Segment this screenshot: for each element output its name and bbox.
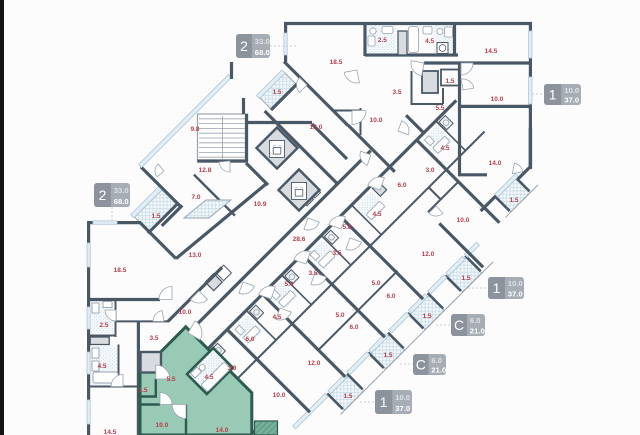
svg-text:37.0: 37.0 xyxy=(508,289,523,298)
svg-text:9.8: 9.8 xyxy=(190,126,199,133)
svg-text:1: 1 xyxy=(493,280,501,296)
svg-text:14.5: 14.5 xyxy=(104,429,117,435)
svg-text:4.5: 4.5 xyxy=(97,363,106,370)
svg-text:10.0: 10.0 xyxy=(508,279,523,288)
svg-text:10.0: 10.0 xyxy=(457,217,470,224)
svg-text:10.0: 10.0 xyxy=(179,309,192,316)
svg-text:28.6: 28.6 xyxy=(293,236,306,243)
svg-text:10.0: 10.0 xyxy=(395,393,410,402)
svg-text:12.8: 12.8 xyxy=(199,167,212,174)
svg-text:10.0: 10.0 xyxy=(273,392,286,399)
svg-text:1: 1 xyxy=(380,394,388,410)
svg-text:12.0: 12.0 xyxy=(308,360,321,367)
svg-text:1.5: 1.5 xyxy=(138,387,147,394)
svg-text:1.5: 1.5 xyxy=(151,213,160,220)
svg-text:3.5: 3.5 xyxy=(149,335,158,342)
svg-text:C: C xyxy=(416,357,426,373)
svg-text:5.0: 5.0 xyxy=(342,224,351,231)
svg-text:1.5: 1.5 xyxy=(343,393,352,400)
svg-text:3.5: 3.5 xyxy=(308,270,317,277)
svg-text:18.5: 18.5 xyxy=(330,59,343,66)
svg-text:33.0: 33.0 xyxy=(255,37,270,46)
svg-text:12.0: 12.0 xyxy=(422,251,435,258)
svg-text:1.5: 1.5 xyxy=(272,89,281,96)
svg-text:6.0: 6.0 xyxy=(349,324,358,331)
svg-text:14.5: 14.5 xyxy=(485,48,498,55)
svg-text:5.5: 5.5 xyxy=(435,105,444,112)
svg-text:3.0: 3.0 xyxy=(425,167,434,174)
svg-text:7.0: 7.0 xyxy=(191,194,200,201)
svg-text:18.5: 18.5 xyxy=(114,267,127,274)
svg-text:33.0: 33.0 xyxy=(114,186,129,195)
svg-text:13.0: 13.0 xyxy=(189,252,202,259)
svg-text:3.5: 3.5 xyxy=(332,250,341,257)
svg-text:5.5: 5.5 xyxy=(166,376,175,383)
svg-text:37.0: 37.0 xyxy=(395,404,410,413)
svg-text:1: 1 xyxy=(549,87,557,103)
svg-text:4.5: 4.5 xyxy=(425,38,434,45)
svg-text:←→: ←→ xyxy=(272,142,281,147)
svg-text:1.5: 1.5 xyxy=(461,275,470,282)
svg-text:C: C xyxy=(454,317,464,333)
svg-text:2: 2 xyxy=(240,38,248,54)
svg-text:14.0: 14.0 xyxy=(489,160,502,167)
svg-text:37.0: 37.0 xyxy=(564,96,579,105)
svg-text:2.5: 2.5 xyxy=(99,322,108,329)
svg-text:10.0: 10.0 xyxy=(491,96,504,103)
svg-text:68.0: 68.0 xyxy=(114,197,129,206)
svg-text:6.0: 6.0 xyxy=(470,316,481,325)
svg-text:6.0: 6.0 xyxy=(431,356,442,365)
svg-text:68.0: 68.0 xyxy=(255,48,270,57)
svg-text:4.5: 4.5 xyxy=(440,145,449,152)
svg-text:5.0: 5.0 xyxy=(335,312,344,319)
svg-text:6.0: 6.0 xyxy=(245,336,254,343)
svg-text:10.0: 10.0 xyxy=(370,117,383,124)
svg-text:←→: ←→ xyxy=(294,184,303,189)
svg-text:1.5: 1.5 xyxy=(383,352,392,359)
svg-text:10.0: 10.0 xyxy=(156,422,169,429)
svg-text:14.0: 14.0 xyxy=(216,427,229,434)
svg-text:5.0: 5.0 xyxy=(371,280,380,287)
svg-text:1.5: 1.5 xyxy=(445,78,454,85)
svg-text:10.9: 10.9 xyxy=(254,201,267,208)
svg-text:2: 2 xyxy=(99,187,107,203)
svg-text:3.0: 3.0 xyxy=(227,365,236,372)
svg-text:6.0: 6.0 xyxy=(397,182,406,189)
svg-text:1.5: 1.5 xyxy=(422,313,431,320)
svg-text:13.0: 13.0 xyxy=(310,124,323,131)
svg-text:2.5: 2.5 xyxy=(378,37,387,44)
svg-text:4.5: 4.5 xyxy=(372,211,381,218)
svg-text:3.5: 3.5 xyxy=(392,89,401,96)
svg-text:4.5: 4.5 xyxy=(204,374,213,381)
svg-text:6.0: 6.0 xyxy=(386,293,395,300)
svg-text:21.0: 21.0 xyxy=(470,326,485,335)
svg-text:5.0: 5.0 xyxy=(284,281,293,288)
svg-text:1.5: 1.5 xyxy=(509,197,518,204)
svg-text:10.0: 10.0 xyxy=(564,86,579,95)
svg-text:21.0: 21.0 xyxy=(431,366,446,375)
svg-text:4.5: 4.5 xyxy=(272,314,281,321)
